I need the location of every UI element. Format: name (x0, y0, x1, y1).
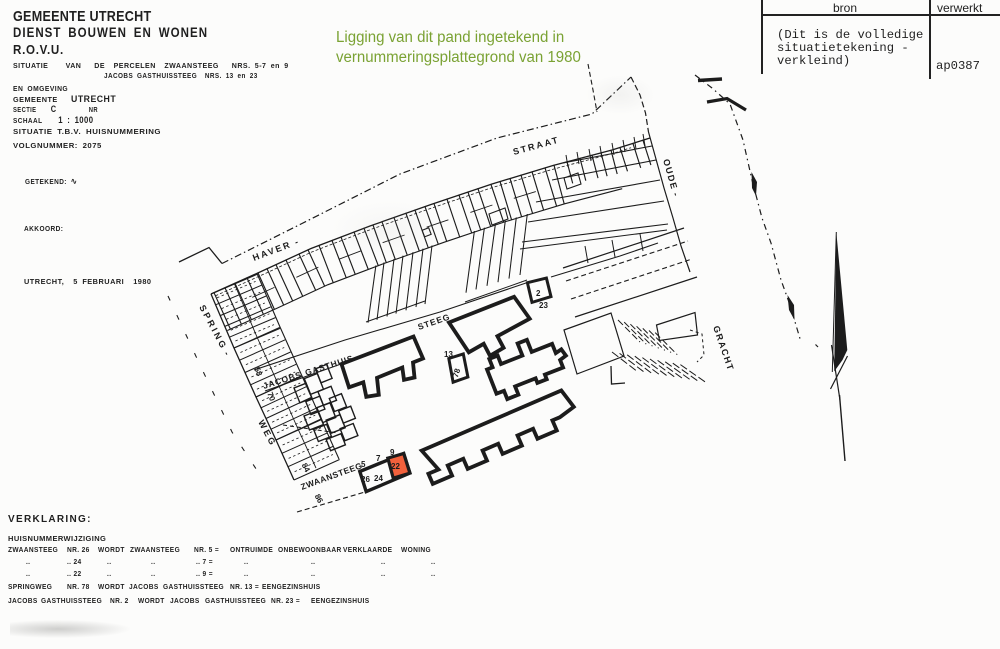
svg-text:22: 22 (391, 462, 400, 471)
svg-text:OUDE-: OUDE- (661, 158, 682, 199)
svg-text:STEEG: STEEG (416, 311, 451, 331)
svg-text:WEG: WEG (256, 418, 278, 448)
svg-text:13: 13 (444, 350, 453, 359)
svg-text:STRAAT: STRAAT (512, 135, 561, 157)
svg-text:78: 78 (451, 367, 462, 379)
svg-text:9: 9 (390, 448, 395, 457)
svg-text:7: 7 (376, 454, 381, 463)
svg-text:86: 86 (313, 493, 325, 506)
svg-text:SPRING-: SPRING- (197, 303, 233, 359)
svg-text:23: 23 (539, 301, 548, 310)
svg-text:26: 26 (361, 475, 370, 484)
svg-text:58: 58 (252, 366, 264, 378)
svg-text:HAVER-: HAVER- (251, 236, 301, 263)
svg-text:24: 24 (374, 474, 383, 483)
svg-text:GRACHT: GRACHT (711, 324, 736, 372)
svg-text:2: 2 (536, 289, 541, 298)
